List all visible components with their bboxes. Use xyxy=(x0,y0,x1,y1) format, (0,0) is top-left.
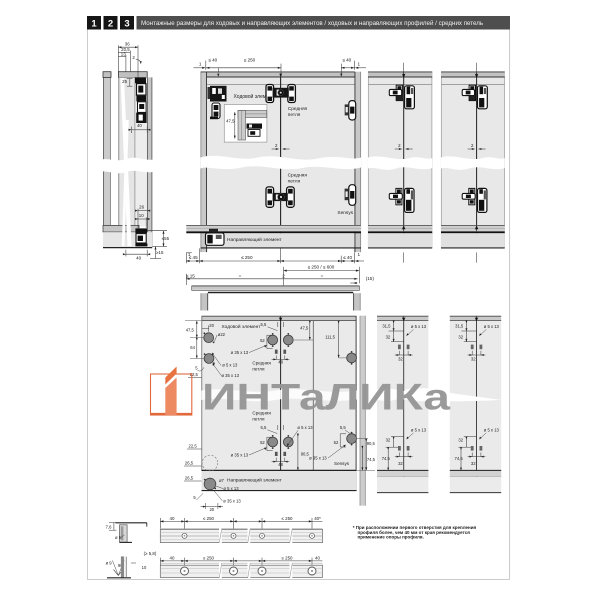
svg-text:32: 32 xyxy=(471,357,476,362)
svg-text:2: 2 xyxy=(282,273,285,278)
svg-text:52: 52 xyxy=(260,338,265,343)
svg-text:5,5: 5,5 xyxy=(340,425,346,430)
svg-text:1: 1 xyxy=(358,62,361,67)
svg-text:26,5: 26,5 xyxy=(185,476,194,481)
svg-text:Монтажные размеры для ходовых: Монтажные размеры для ходовых и направля… xyxy=(141,20,483,27)
svg-text:5: 5 xyxy=(193,495,196,500)
svg-text:Направляющий элемент: Направляющий элемент xyxy=(227,236,283,243)
svg-text:1: 1 xyxy=(358,252,361,257)
svg-text:13: 13 xyxy=(121,51,126,56)
svg-text:≤ 250: ≤ 250 xyxy=(203,516,215,521)
svg-text:40: 40 xyxy=(170,516,175,521)
svg-text:32: 32 xyxy=(386,437,391,442)
svg-text:≤ 250: ≤ 250 xyxy=(241,255,253,260)
svg-text:47,5: 47,5 xyxy=(226,118,235,123)
svg-text:74,5: 74,5 xyxy=(455,456,464,461)
svg-text:петля: петля xyxy=(288,113,301,118)
svg-text:32: 32 xyxy=(458,334,463,339)
svg-text:≤55: ≤55 xyxy=(162,236,170,241)
svg-text:ø 5 x 13: ø 5 x 13 xyxy=(411,324,427,329)
svg-text:47,5: 47,5 xyxy=(186,327,195,332)
svg-text:(≥ 5,8): (≥ 5,8) xyxy=(144,551,157,556)
svg-text:≤ 45: ≤ 45 xyxy=(189,255,198,260)
svg-text:5,5: 5,5 xyxy=(260,322,266,327)
svg-text:48: 48 xyxy=(278,360,283,365)
svg-text:1: 1 xyxy=(199,62,202,67)
svg-text:ø 9: ø 9 xyxy=(106,560,113,565)
svg-text:40: 40 xyxy=(136,255,141,260)
svg-text:52: 52 xyxy=(260,440,265,445)
svg-text:Ходовой элемент: Ходовой элемент xyxy=(222,323,262,330)
svg-text:ø 5 x 13: ø 5 x 13 xyxy=(222,363,238,368)
svg-text:≤ 250: ≤ 250 xyxy=(282,555,294,560)
svg-text:применение опоры профиля.: применение опоры профиля. xyxy=(358,533,424,539)
svg-text:ø 35 x 13: ø 35 x 13 xyxy=(231,452,249,457)
svg-text:≤ 15: ≤ 15 xyxy=(186,273,195,278)
svg-text:Sensys: Sensys xyxy=(334,461,350,466)
svg-text:≥ 250 / ≤ 600: ≥ 250 / ≤ 600 xyxy=(308,265,335,270)
svg-text:ø22: ø22 xyxy=(218,332,226,337)
svg-text:≤ 250: ≤ 250 xyxy=(282,516,294,521)
svg-text:ø 35 x 13: ø 35 x 13 xyxy=(309,455,327,460)
svg-text:=: = xyxy=(321,273,324,278)
svg-text:ø 35 x 13: ø 35 x 13 xyxy=(231,350,249,355)
svg-text:32: 32 xyxy=(398,461,403,466)
svg-text:10: 10 xyxy=(139,213,144,218)
svg-text:48: 48 xyxy=(278,462,283,467)
svg-text:Направляющий элемент: Направляющий элемент xyxy=(227,476,283,483)
svg-text:26: 26 xyxy=(139,204,144,209)
svg-text:ø7: ø7 xyxy=(219,478,225,483)
svg-text:ø 35 x 13: ø 35 x 13 xyxy=(223,498,241,503)
svg-text:≤ 250: ≤ 250 xyxy=(203,555,215,560)
svg-text:40: 40 xyxy=(315,555,320,560)
svg-text:10: 10 xyxy=(142,565,147,570)
svg-text:40*: 40* xyxy=(314,516,321,521)
svg-text:32: 32 xyxy=(386,334,391,339)
svg-text:ø 5 x 13: ø 5 x 13 xyxy=(223,486,239,491)
svg-text:=: = xyxy=(239,273,242,278)
svg-text:1: 1 xyxy=(91,18,97,29)
svg-text:111,5: 111,5 xyxy=(325,335,336,340)
svg-text:74,5: 74,5 xyxy=(382,456,391,461)
svg-text:≥15: ≥15 xyxy=(156,250,164,255)
svg-text:26,5: 26,5 xyxy=(185,461,194,466)
svg-text:≤ 250: ≤ 250 xyxy=(244,57,256,62)
svg-text:Средняя: Средняя xyxy=(288,172,308,178)
svg-text:2: 2 xyxy=(108,18,113,29)
svg-text:ø 5 x 13: ø 5 x 13 xyxy=(484,427,500,432)
svg-text:32: 32 xyxy=(398,357,403,362)
svg-text:40: 40 xyxy=(170,555,175,560)
svg-text:20: 20 xyxy=(209,507,214,512)
svg-text:31,5: 31,5 xyxy=(455,324,464,329)
svg-text:90,5: 90,5 xyxy=(367,441,376,446)
svg-text:22,5: 22,5 xyxy=(189,444,198,449)
svg-text:2: 2 xyxy=(132,55,135,60)
svg-text:петля: петля xyxy=(288,179,301,184)
svg-text:7,6: 7,6 xyxy=(106,525,112,530)
svg-text:ø 5 x 13: ø 5 x 13 xyxy=(411,427,427,432)
svg-text:74,5: 74,5 xyxy=(367,457,376,462)
svg-text:(15): (15) xyxy=(366,276,375,281)
svg-text:петля: петля xyxy=(252,366,265,371)
svg-text:Средняя: Средняя xyxy=(288,106,308,112)
svg-text:20: 20 xyxy=(209,323,214,328)
svg-text:≤ 40: ≤ 40 xyxy=(208,57,217,62)
svg-text:3: 3 xyxy=(124,18,129,29)
svg-text:22,5: 22,5 xyxy=(190,372,199,377)
svg-text:5,5: 5,5 xyxy=(260,425,266,430)
svg-text:31,5: 31,5 xyxy=(382,324,391,329)
svg-text:52: 52 xyxy=(334,440,339,445)
svg-text:32: 32 xyxy=(458,437,463,442)
svg-text:32: 32 xyxy=(471,461,476,466)
svg-text:Средняя: Средняя xyxy=(252,361,271,366)
svg-text:64: 64 xyxy=(190,345,195,350)
svg-text:25: 25 xyxy=(122,79,127,84)
svg-text:≤ 40: ≤ 40 xyxy=(343,255,352,260)
svg-text:ø 5 x 13: ø 5 x 13 xyxy=(484,324,500,329)
svg-text:5: 5 xyxy=(195,365,198,370)
svg-text:≤ 40: ≤ 40 xyxy=(342,57,351,62)
svg-text:ИНТаЛИКа: ИНТаЛИКа xyxy=(202,376,451,418)
svg-text:ø 5 x 13: ø 5 x 13 xyxy=(297,425,313,430)
svg-text:36: 36 xyxy=(125,42,130,47)
svg-text:47,5: 47,5 xyxy=(300,325,309,330)
svg-text:Sensys: Sensys xyxy=(337,210,353,216)
svg-text:40: 40 xyxy=(137,123,142,128)
